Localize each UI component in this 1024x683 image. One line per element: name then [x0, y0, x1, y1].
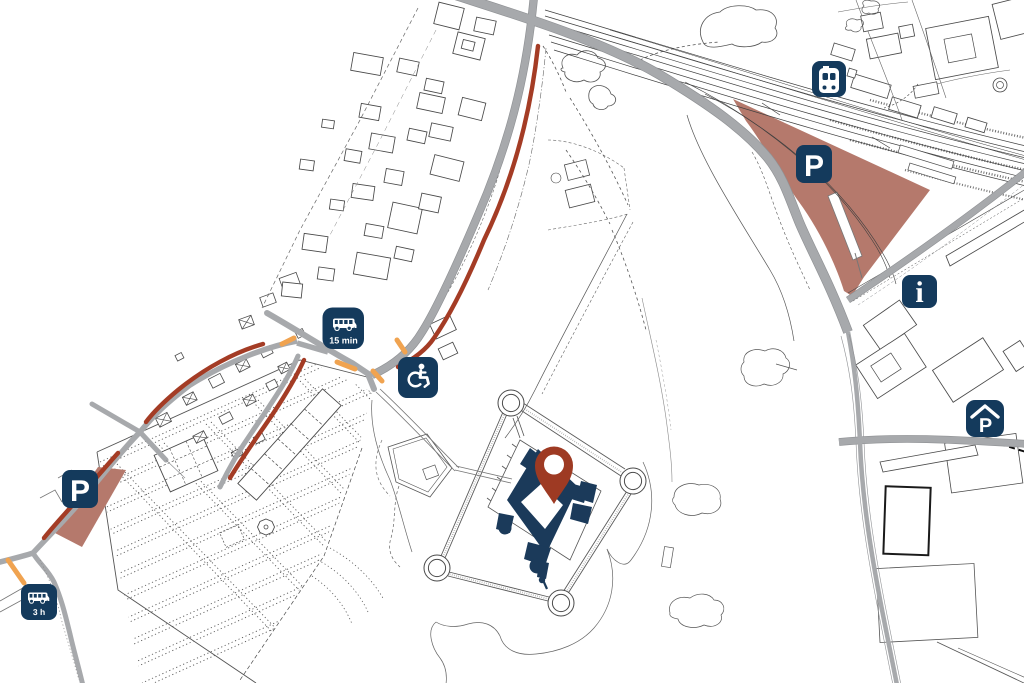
svg-text:P: P [70, 475, 90, 508]
svg-text:P: P [804, 150, 824, 183]
svg-text:P: P [979, 415, 992, 437]
svg-text:15 min: 15 min [329, 335, 358, 345]
svg-text:i: i [915, 276, 923, 309]
svg-text:3 h: 3 h [33, 607, 45, 617]
